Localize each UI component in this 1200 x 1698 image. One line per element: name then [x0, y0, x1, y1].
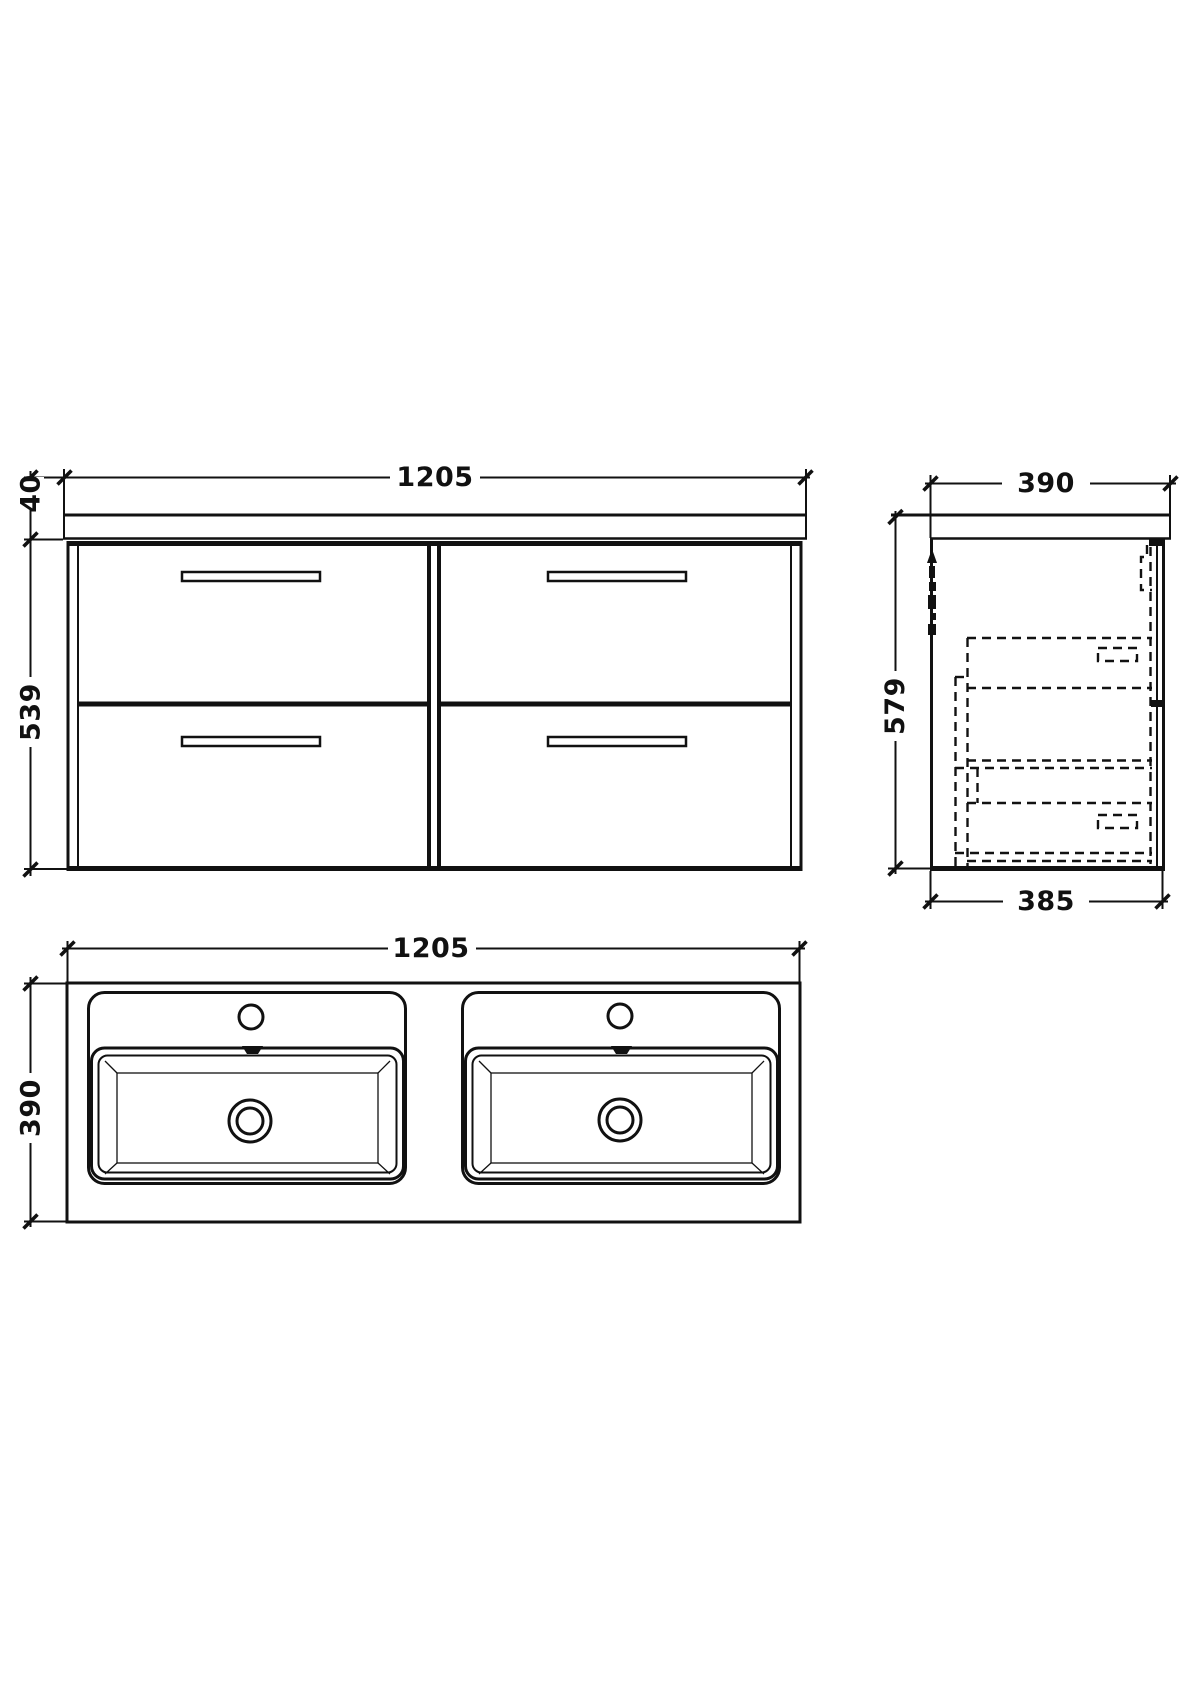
vanity-unit-technical-drawing: 1205 40 539: [0, 0, 1200, 1698]
right-tap-hole: [608, 1004, 632, 1028]
left-tap-hole: [239, 1005, 263, 1029]
dim-label-front-width: 1205: [396, 462, 473, 493]
plan-counter-outline: [67, 983, 800, 1222]
side-drawer-front-top-tick: [1149, 539, 1164, 546]
front-drawer-split-right: [441, 702, 791, 707]
dim-label-plan-width: 1205: [392, 933, 469, 964]
left-drain-inner: [237, 1108, 263, 1134]
plan-right-basin-module: [463, 993, 780, 1184]
dim-label-front-cabinet-height: 539: [16, 683, 47, 741]
right-bowl-corner-lines: [479, 1061, 764, 1174]
drawer-handle-top-right: [548, 572, 686, 581]
front-view-dimensions: 1205 40 539: [16, 462, 813, 877]
left-drain-outer: [229, 1100, 271, 1142]
front-center-divider-right: [437, 546, 441, 866]
right-bowl-outer: [466, 1048, 778, 1179]
left-bowl-corner-lines: [105, 1061, 390, 1174]
side-view-dimensions: 390 579 385: [880, 468, 1178, 917]
side-view: [891, 475, 1171, 871]
dim-label-side-total-height: 579: [880, 677, 911, 735]
side-drawer-gap-tick: [1151, 700, 1165, 707]
dim-label-front-counter-thickness: 40: [16, 474, 47, 513]
drawer-handle-bottom-left: [182, 737, 320, 746]
front-view: [63, 469, 807, 871]
drawer-handle-bottom-right: [548, 737, 686, 746]
dim-label-plan-depth: 390: [16, 1079, 47, 1137]
hidden-upper-handle: [1098, 648, 1137, 661]
front-drawer-split-left: [78, 702, 427, 707]
right-drain-outer: [599, 1099, 641, 1141]
side-cabinet-bottom: [930, 866, 1164, 871]
dim-label-side-depth: 390: [1017, 468, 1075, 499]
front-cabinet-top-rail: [67, 541, 802, 546]
right-overflow-slot: [611, 1046, 632, 1054]
left-bowl-outer: [92, 1048, 404, 1179]
front-center-divider-left: [427, 546, 431, 866]
dim-label-side-cabinet-depth: 385: [1017, 886, 1075, 917]
plan-view: [67, 983, 800, 1222]
front-cabinet-bottom-rail: [67, 866, 802, 871]
side-hidden-lines: [955, 545, 1152, 866]
left-overflow-slot: [242, 1046, 263, 1054]
technical-drawing-sheet: 1205 40 539: [0, 0, 1200, 1698]
hidden-lower-handle: [1098, 815, 1137, 828]
drawer-handle-top-left: [182, 572, 320, 581]
right-bowl-floor: [491, 1073, 752, 1163]
left-bowl-floor: [117, 1073, 378, 1163]
right-drain-inner: [607, 1107, 633, 1133]
plan-left-basin-module: [89, 993, 406, 1184]
